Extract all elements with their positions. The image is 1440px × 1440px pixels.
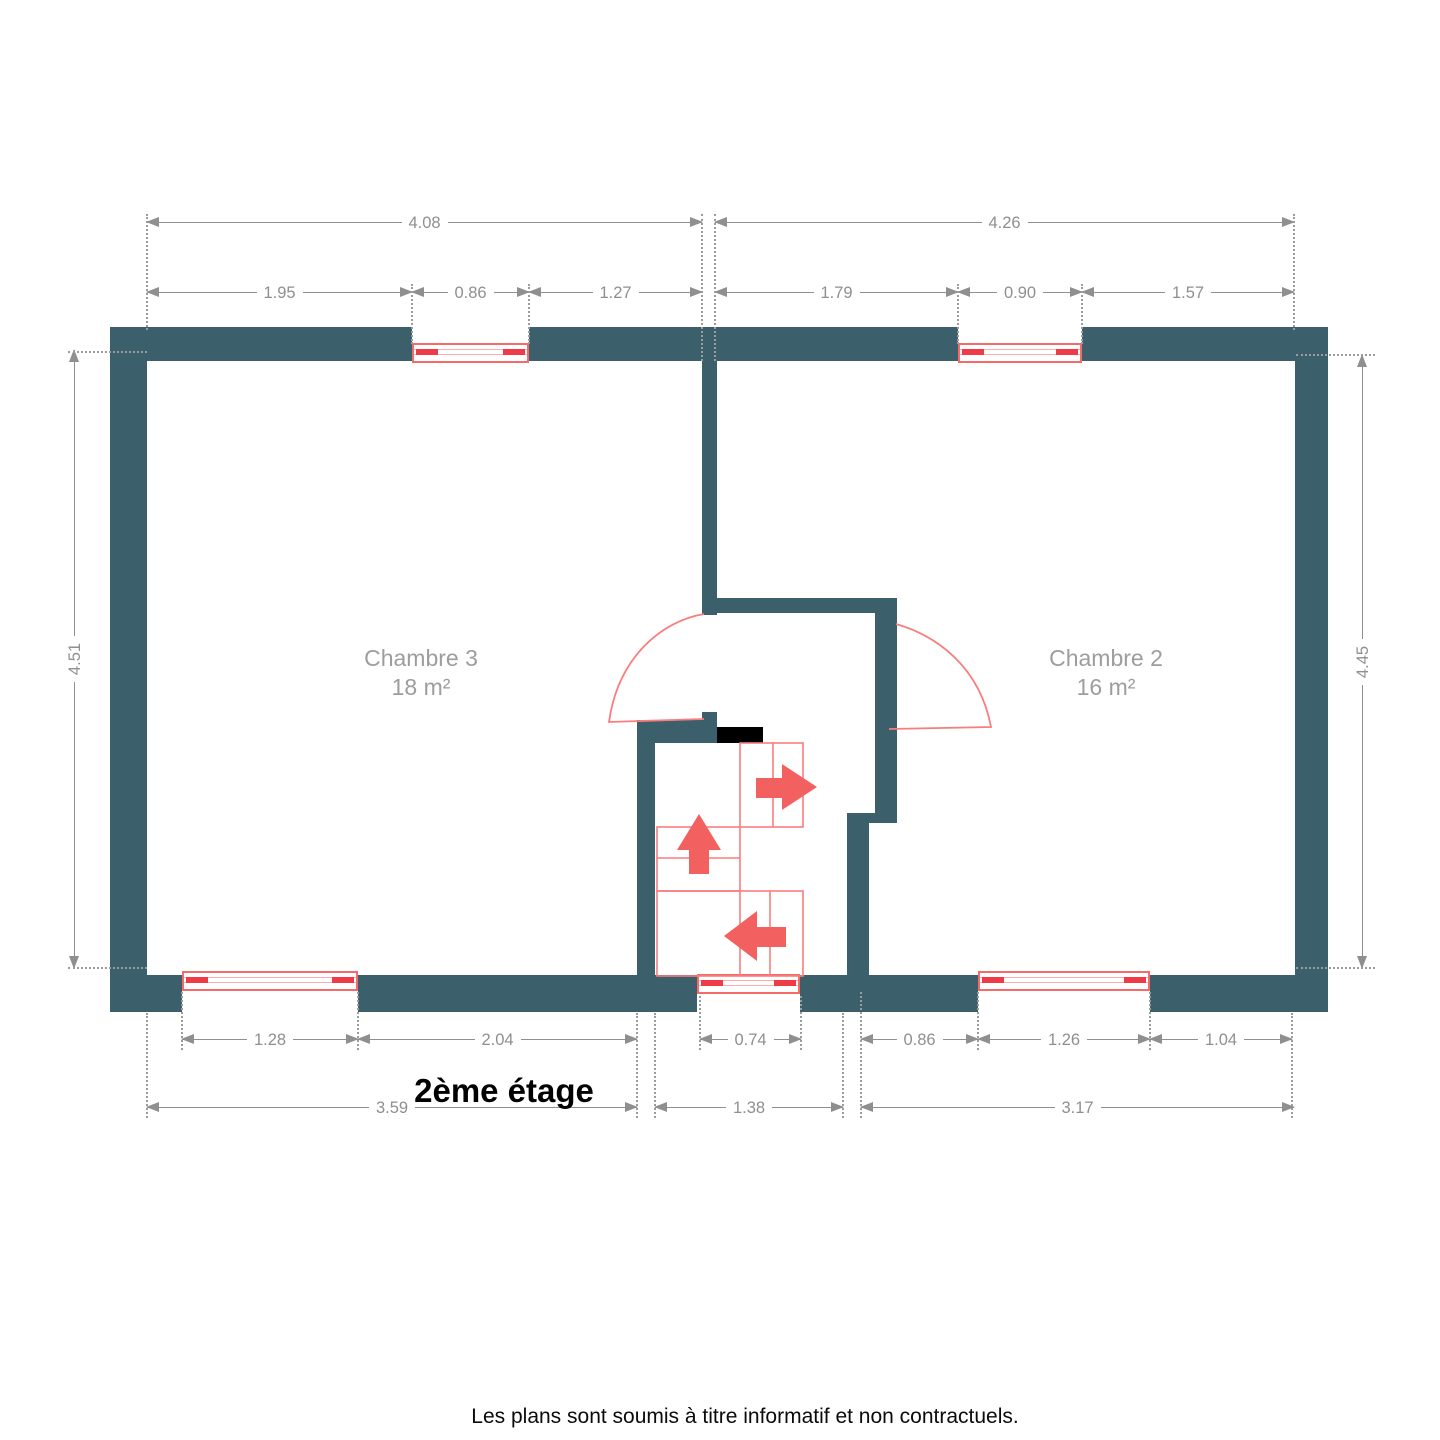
stair-arrow-left-icon: [724, 911, 786, 961]
extension-line: [1149, 992, 1151, 1050]
dim-top-seg-195: 1.95: [147, 282, 412, 304]
dim-bottom-seg-204: 2.04: [358, 1029, 637, 1051]
dim-right-height: 4.45: [1352, 355, 1374, 968]
dim-top-seg-157: 1.57: [1082, 282, 1294, 304]
dim-top-overall-right: 4.26: [715, 212, 1294, 234]
dim-bottom-overall-317: 3.17: [861, 1097, 1294, 1119]
room-area: 16 m²: [956, 673, 1256, 702]
dim-top-seg-127: 1.27: [529, 282, 702, 304]
extension-line: [1081, 284, 1083, 344]
wall-left: [110, 327, 147, 1012]
wall-divider-center: [702, 361, 717, 615]
extension-line: [699, 996, 701, 1050]
wall-top-left: [110, 327, 412, 361]
extension-line: [68, 351, 147, 353]
floor-title: 2ème étage: [344, 1072, 664, 1110]
disclaimer-text: Les plans sont soumis à titre informatif…: [295, 1405, 1195, 1429]
extension-line: [957, 284, 959, 344]
extension-line: [800, 996, 802, 1050]
extension-line: [357, 992, 359, 1050]
wall-right: [1295, 327, 1328, 1012]
wall-stair-right-lower: [847, 823, 869, 975]
extension-line: [1293, 214, 1295, 330]
extension-line: [1296, 967, 1375, 969]
extension-line: [977, 992, 979, 1050]
extension-line: [860, 992, 862, 1118]
stair-treads: [657, 743, 803, 976]
extension-line: [714, 214, 716, 361]
wall-stair-right-step: [847, 813, 897, 823]
extension-line: [1291, 1013, 1293, 1118]
dim-bottom-seg-104: 1.04: [1150, 1029, 1292, 1051]
dim-bottom-seg-074: 0.74: [700, 1029, 801, 1051]
dim-bottom-seg-128: 1.28: [182, 1029, 358, 1051]
extension-line: [411, 284, 413, 344]
wall-stair-arm: [637, 720, 717, 743]
dim-left-height: 4.51: [64, 350, 86, 968]
stair-door-threshold: [717, 727, 763, 743]
dim-top-seg-086: 0.86: [412, 282, 529, 304]
extension-line: [701, 214, 703, 361]
stair-arrow-up-icon: [677, 814, 721, 874]
wall-stair-top: [702, 598, 897, 613]
wall-bottom-3: [800, 975, 978, 1012]
room-name: Chambre 3: [271, 644, 571, 673]
room-label-chambre-2: Chambre 2 16 m²: [956, 644, 1256, 702]
room-label-chambre-3: Chambre 3 18 m²: [271, 644, 571, 702]
wall-bottom-2: [358, 975, 697, 1012]
window-bottom-left: [182, 971, 358, 991]
wall-bottom-4: [1150, 975, 1328, 1012]
window-top-left: [412, 343, 529, 363]
wall-bottom-1: [110, 975, 182, 1012]
stair-arrow-right-icon: [756, 764, 817, 810]
extension-line: [528, 284, 530, 344]
dim-top-seg-090: 0.90: [958, 282, 1082, 304]
window-top-right: [958, 343, 1082, 363]
dim-top-seg-179: 1.79: [715, 282, 958, 304]
wall-top-center: [529, 327, 958, 361]
dim-bottom-seg-126: 1.26: [978, 1029, 1150, 1051]
extension-line: [146, 214, 148, 330]
extension-line: [1296, 354, 1375, 356]
extension-line: [181, 992, 183, 1050]
wall-top-right: [1082, 327, 1328, 361]
extension-line: [68, 967, 147, 969]
dim-bottom-seg-086: 0.86: [861, 1029, 978, 1051]
extension-line: [146, 1013, 148, 1118]
window-bottom-right: [978, 971, 1150, 991]
dim-bottom-overall-138: 1.38: [655, 1097, 843, 1119]
stair-exit-sill: [697, 974, 800, 994]
wall-stair-right-upper: [875, 613, 897, 813]
floor-plan: Chambre 3 18 m² Chambre 2 16 m² 4.08 4.2…: [0, 0, 1440, 1440]
room-area: 18 m²: [271, 673, 571, 702]
room-name: Chambre 2: [956, 644, 1256, 673]
dim-top-overall-left: 4.08: [147, 212, 702, 234]
extension-line: [842, 1013, 844, 1118]
wall-stair-left: [637, 743, 655, 975]
stair-fan-left: [609, 614, 704, 722]
